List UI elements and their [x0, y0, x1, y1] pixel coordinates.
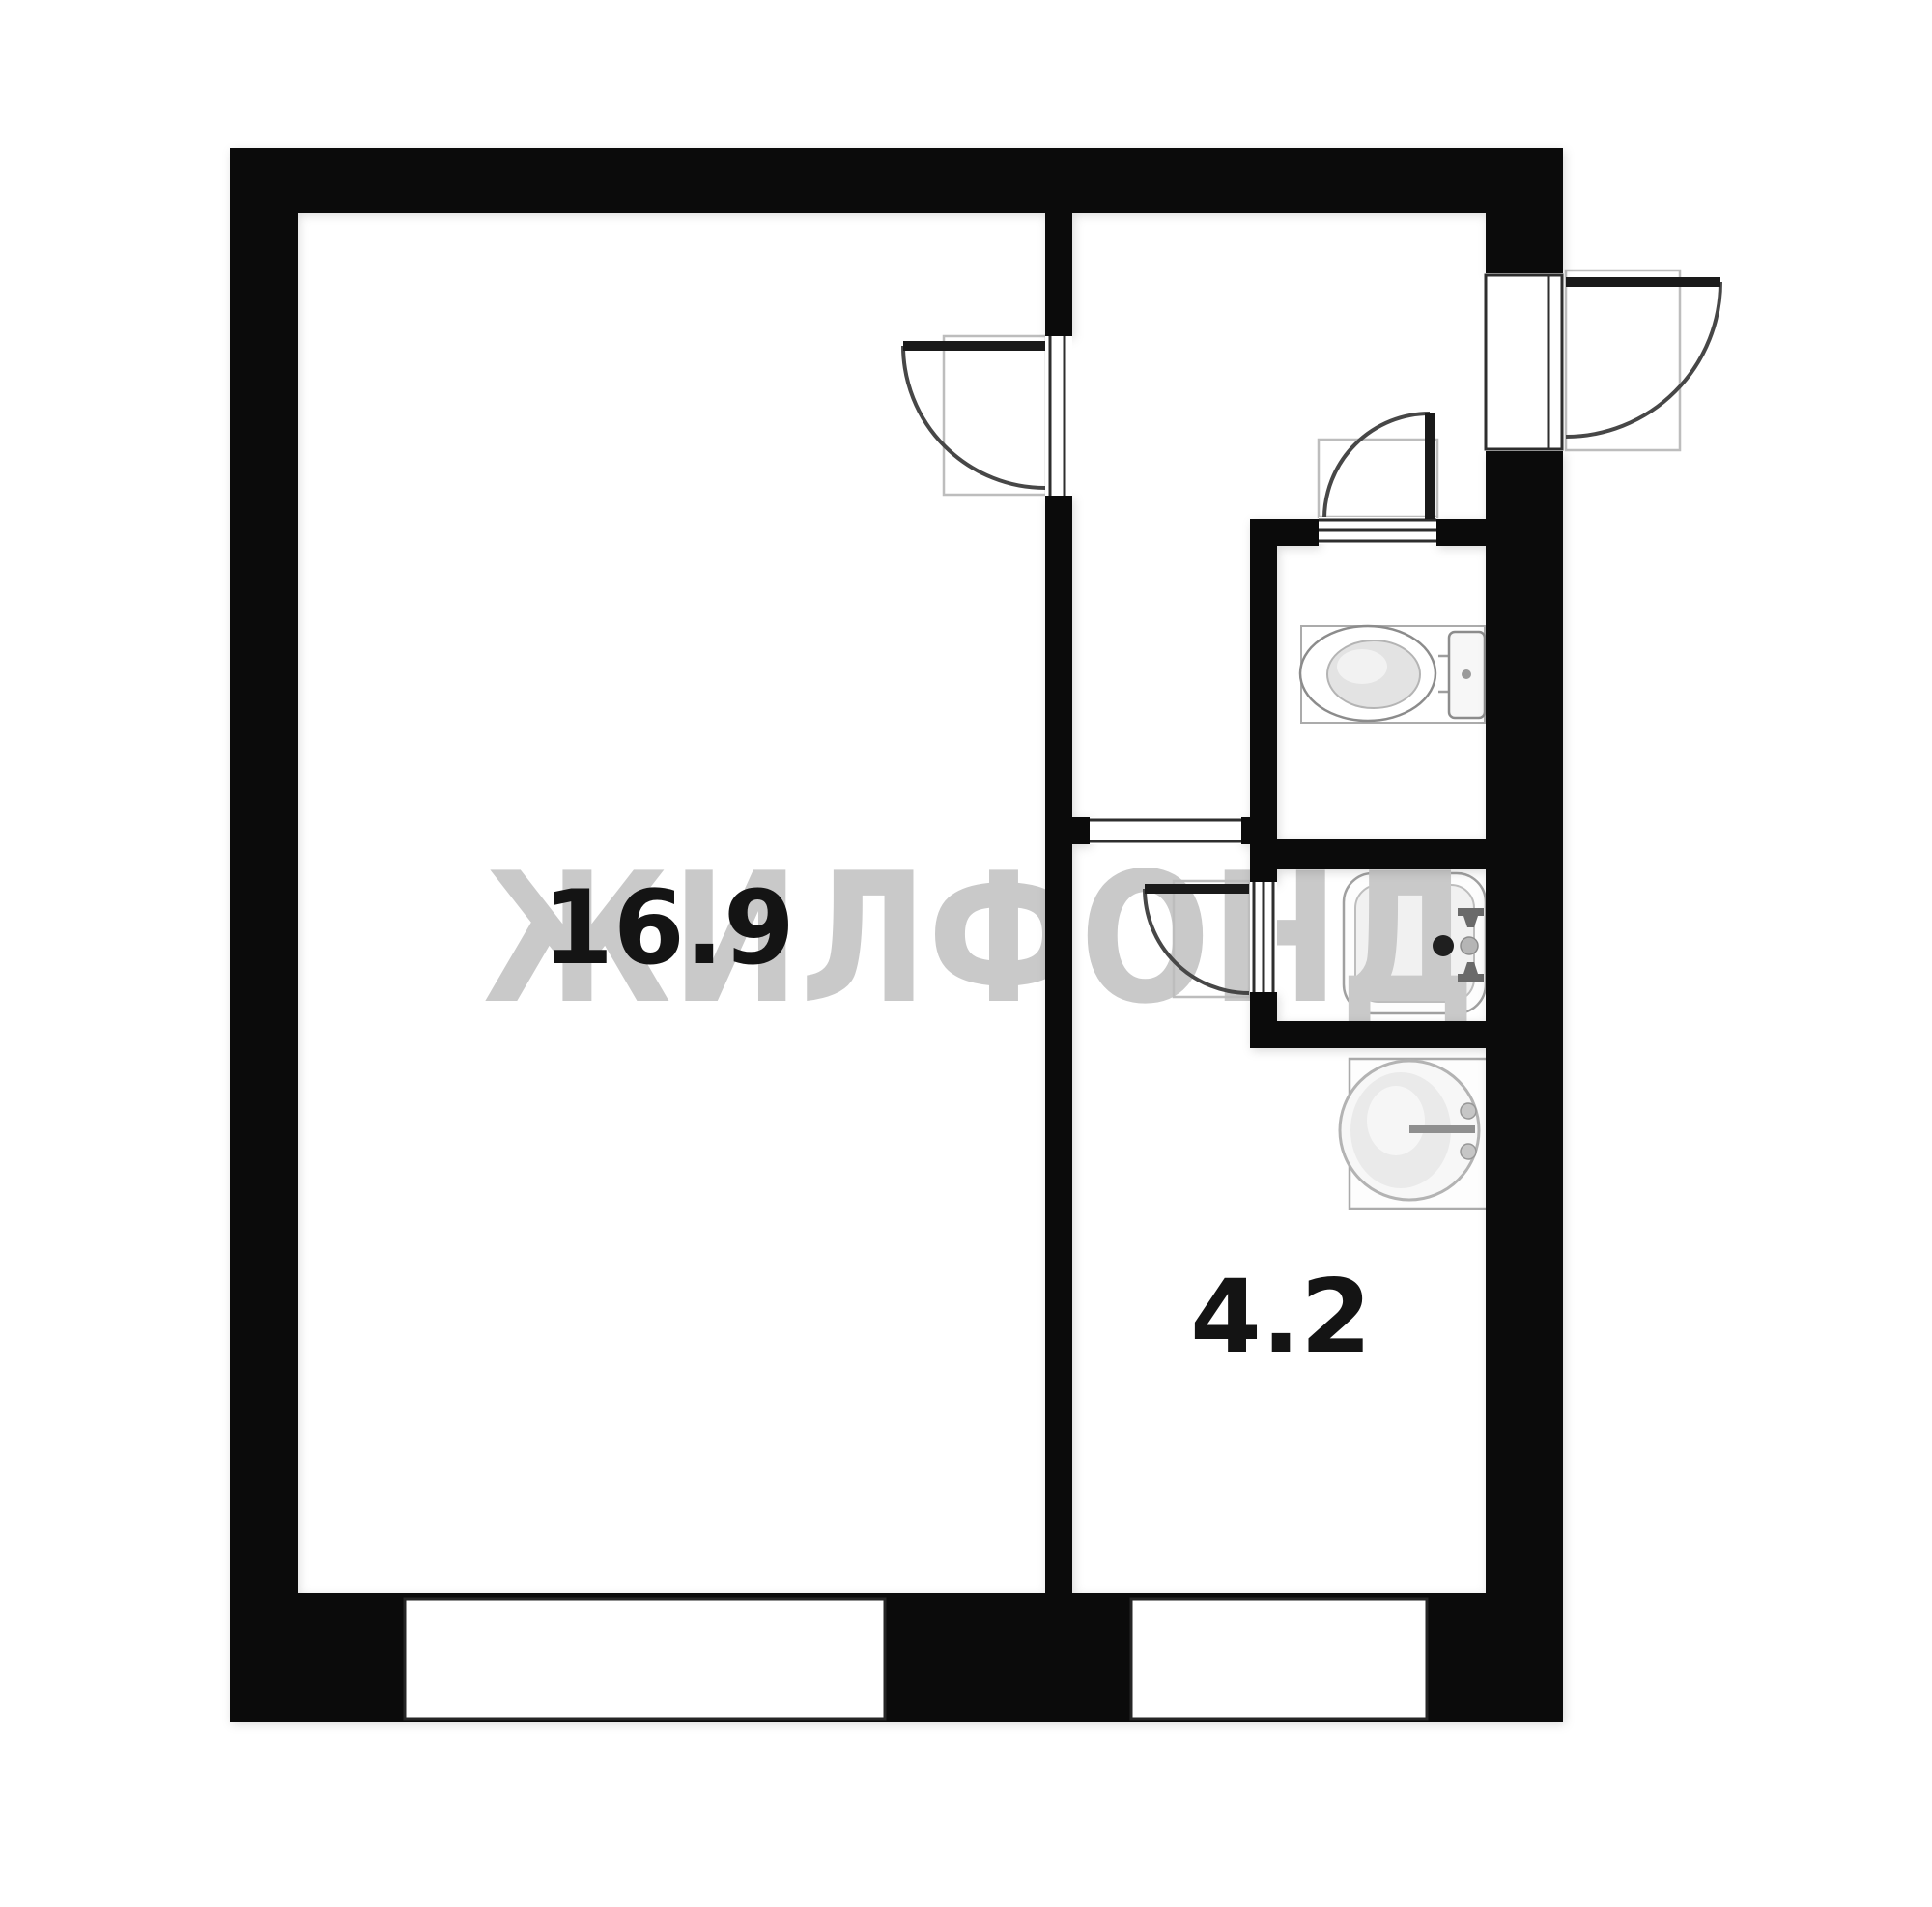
washbasin-handle-bottom — [1458, 974, 1484, 982]
kitchen-window — [1131, 1599, 1427, 1719]
living-room-window — [405, 1599, 885, 1719]
wall-wc-bathroom-divider — [1250, 839, 1486, 869]
floor-plan: ЖИЛФОНД — [0, 0, 1932, 1907]
entry-door-arc — [1566, 282, 1720, 437]
entry-door-leaf — [1566, 277, 1720, 287]
wall-living-hall-upper — [1045, 213, 1072, 336]
kitchen-sink-bowl-highlight — [1367, 1086, 1425, 1155]
kitchen-sink-knob-bottom — [1461, 1144, 1476, 1159]
washbasin-handle-top — [1458, 908, 1484, 916]
kitchen-sink-spout — [1409, 1125, 1475, 1133]
wall-living-hall-lower — [1045, 496, 1072, 1593]
floor-plan-canvas: ЖИЛФОНД — [0, 0, 1932, 1907]
wall-bathroom-left-upper — [1250, 869, 1277, 882]
kitchen-sink-knob-top — [1461, 1103, 1476, 1119]
wall-wc-top-right — [1436, 519, 1486, 546]
washbasin-knob — [1461, 937, 1478, 954]
wall-wc-left — [1250, 519, 1277, 844]
toilet-flush-button — [1462, 669, 1471, 679]
hallway-floor-upper — [1072, 213, 1486, 527]
entry-door-jamb-inner — [1548, 275, 1562, 449]
toilet-bowl-highlight — [1337, 649, 1387, 684]
kitchen-sink — [1340, 1059, 1488, 1209]
wall-right-above-entry — [1486, 148, 1563, 273]
kitchen-area-label: 4.2 — [1190, 1258, 1372, 1377]
wall-right — [1486, 451, 1563, 1722]
toilet — [1300, 626, 1485, 723]
wall-left — [230, 148, 298, 1722]
hallway-floor-lower — [1072, 519, 1250, 844]
entry-door-jamb — [1486, 275, 1548, 449]
entry-door-swing-box — [1566, 270, 1680, 450]
wall-top — [230, 148, 1563, 213]
wc-door-leaf — [1425, 413, 1435, 519]
washbasin-drain-dot — [1433, 935, 1454, 956]
wall-hall-kitchen-left — [1045, 817, 1090, 844]
living-room-door-leaf — [903, 341, 1045, 351]
bathroom-door-leaf — [1145, 884, 1249, 894]
wall-bathroom-bottom — [1250, 1021, 1486, 1048]
living-room-area-label: 16.9 — [542, 868, 795, 987]
